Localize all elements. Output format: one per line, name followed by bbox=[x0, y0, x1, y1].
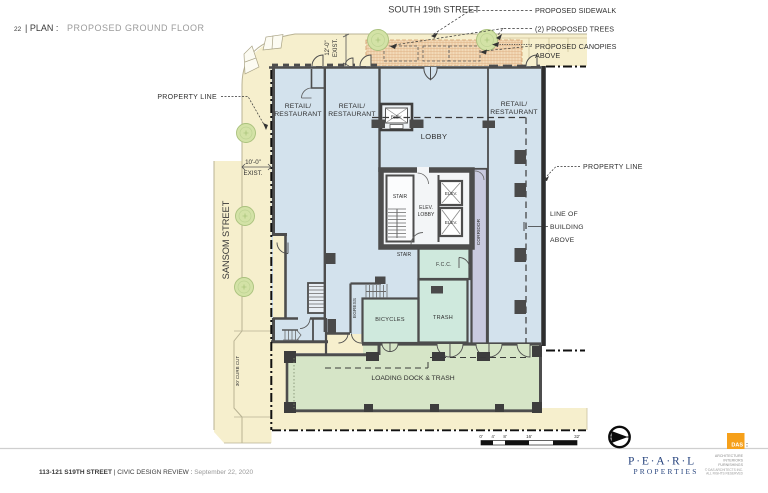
svg-text:8': 8' bbox=[503, 434, 507, 439]
svg-text:PROPOSED GROUND FLOOR: PROPOSED GROUND FLOOR bbox=[67, 23, 205, 33]
svg-text:CORRIDOR: CORRIDOR bbox=[476, 218, 482, 245]
svg-text:DAS: DAS bbox=[731, 443, 743, 449]
svg-text:ELEV.: ELEV. bbox=[445, 220, 457, 225]
svg-text:| PLAN :: | PLAN : bbox=[25, 23, 58, 33]
svg-text:EXIST.: EXIST. bbox=[333, 38, 339, 57]
svg-text:RETAIL/: RETAIL/ bbox=[501, 101, 528, 108]
svg-text:RESTAURANT: RESTAURANT bbox=[328, 111, 376, 118]
svg-text:LOADING DOCK & TRASH: LOADING DOCK & TRASH bbox=[371, 375, 454, 382]
svg-text:BICYCLES: BICYCLES bbox=[375, 317, 405, 323]
svg-text:10'-0": 10'-0" bbox=[245, 159, 261, 166]
svg-text:ELEV.: ELEV. bbox=[445, 191, 457, 196]
svg-text:INTERIORS: INTERIORS bbox=[723, 459, 743, 463]
svg-text:F.C.C.: F.C.C. bbox=[436, 262, 452, 268]
svg-text:(2) PROPOSED TREES: (2) PROPOSED TREES bbox=[535, 25, 614, 34]
svg-text:PROPOSED SIDEWALK: PROPOSED SIDEWALK bbox=[535, 6, 616, 15]
svg-text:LINE OF: LINE OF bbox=[550, 211, 578, 218]
svg-text:LOBBY: LOBBY bbox=[418, 212, 435, 218]
svg-text:RETAIL/: RETAIL/ bbox=[285, 103, 312, 110]
svg-text:STAIR: STAIR bbox=[397, 252, 412, 258]
svg-text:PROPERTIES: PROPERTIES bbox=[633, 467, 698, 476]
svg-text:32': 32' bbox=[574, 434, 580, 439]
svg-text:LOBBY: LOBBY bbox=[421, 132, 448, 141]
svg-text:ELEV.: ELEV. bbox=[419, 205, 433, 211]
svg-text:12'-0": 12'-0" bbox=[325, 40, 331, 55]
svg-text:113-121 S19TH STREET | CIVIC D: 113-121 S19TH STREET | CIVIC DESIGN REVI… bbox=[39, 469, 254, 476]
svg-text:ARCHITECTURE: ARCHITECTURE bbox=[715, 454, 744, 458]
svg-text:ALL RIGHTS RESERVED: ALL RIGHTS RESERVED bbox=[706, 472, 744, 476]
svg-text:BUILDING: BUILDING bbox=[550, 224, 584, 231]
svg-text:ABOVE: ABOVE bbox=[535, 51, 560, 60]
svg-text:16': 16' bbox=[526, 434, 532, 439]
svg-text:PROPERTY LINE: PROPERTY LINE bbox=[583, 164, 643, 171]
svg-text:RESTAURANT: RESTAURANT bbox=[274, 111, 322, 118]
svg-text:30' CURB CUT: 30' CURB CUT bbox=[235, 356, 240, 387]
svg-text::: : bbox=[746, 443, 748, 449]
svg-text:EXIST.: EXIST. bbox=[244, 170, 263, 177]
svg-text:STAIR: STAIR bbox=[393, 194, 408, 200]
svg-text:ABOVE: ABOVE bbox=[550, 237, 575, 244]
svg-text:P·E·A·R·L: P·E·A·R·L bbox=[628, 456, 696, 468]
svg-text:SANSOM STREET: SANSOM STREET bbox=[221, 200, 231, 279]
svg-text:EGRESS: EGRESS bbox=[352, 298, 358, 318]
svg-text:RETAIL/: RETAIL/ bbox=[339, 103, 366, 110]
svg-text:RESTAURANT: RESTAURANT bbox=[490, 109, 538, 116]
svg-text:TRASH: TRASH bbox=[433, 315, 453, 321]
svg-text:4': 4' bbox=[491, 434, 495, 439]
svg-text:ELEV.: ELEV. bbox=[391, 115, 403, 120]
svg-text:0': 0' bbox=[479, 434, 483, 439]
svg-text:PROPERTY LINE: PROPERTY LINE bbox=[157, 94, 217, 101]
svg-text:22: 22 bbox=[14, 26, 22, 33]
svg-text:PROPOSED CANOPIES: PROPOSED CANOPIES bbox=[535, 42, 617, 51]
svg-text:FURNISHINGS: FURNISHINGS bbox=[718, 463, 743, 467]
